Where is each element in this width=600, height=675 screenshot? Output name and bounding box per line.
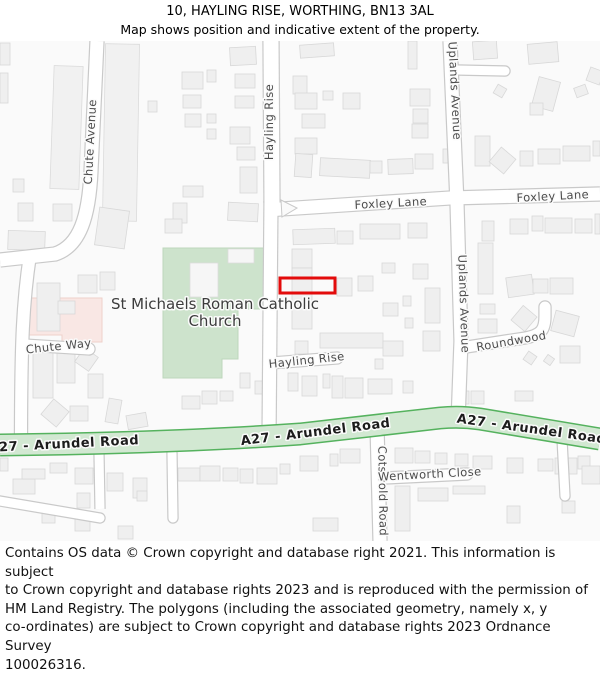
copyright-line: to Crown copyright and database rights 2… [5, 582, 595, 601]
copyright-line: HM Land Registry. The polygons (includin… [5, 601, 595, 620]
copyright-line: 100026316. [5, 657, 595, 675]
property-map: Chute AvenueHayling RiseUplands AvenueUp… [0, 41, 600, 541]
map-svg: Chute AvenueHayling RiseUplands AvenueUp… [0, 41, 600, 541]
copyright-notice: Contains OS data © Crown copyright and d… [0, 541, 600, 675]
church-label: St Michaels Roman Catholic [111, 295, 319, 313]
header: 10, HAYLING RISE, WORTHING, BN13 3AL Map… [0, 0, 600, 41]
copyright-line: Contains OS data © Crown copyright and d… [5, 545, 595, 582]
page-title: 10, HAYLING RISE, WORTHING, BN13 3AL [0, 4, 600, 20]
page-subtitle: Map shows position and indicative extent… [0, 22, 600, 38]
church-label: Church [188, 312, 241, 330]
road-label: Hayling Rise [262, 84, 276, 160]
road-label: Cotswold Road [375, 446, 391, 536]
